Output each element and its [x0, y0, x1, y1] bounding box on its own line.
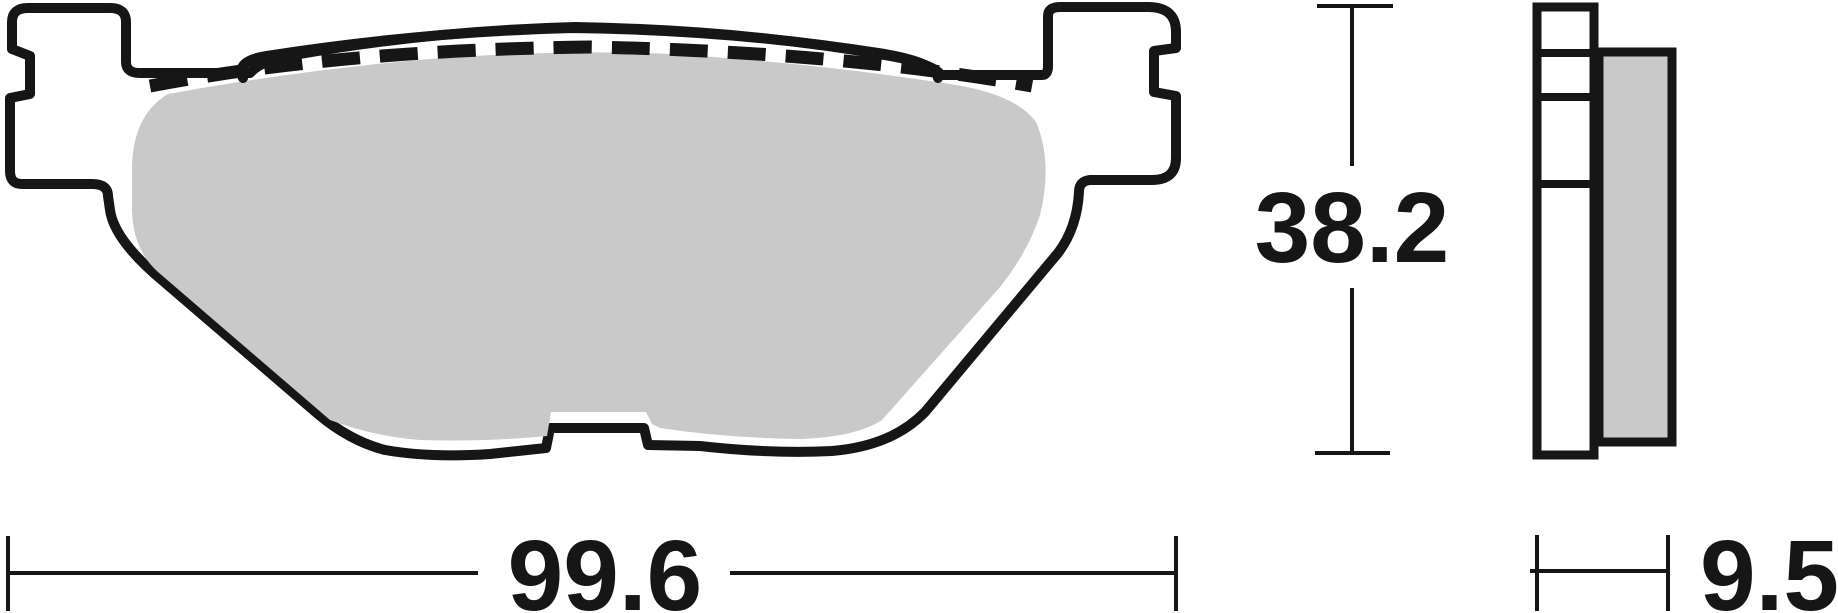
height-dimension-label: 38.2 [1255, 172, 1450, 284]
drawing-canvas: 38.2 99.6 9.5 [0, 0, 1838, 613]
side-friction-material [1599, 52, 1672, 442]
front-view [10, 7, 1176, 455]
front-friction-material [132, 52, 1046, 440]
side-view [1537, 7, 1672, 455]
side-backing-plate [1537, 7, 1594, 455]
thickness-dimension-label: 9.5 [1700, 520, 1838, 613]
thickness-dimension [1530, 535, 1668, 611]
width-dimension-label: 99.6 [508, 520, 703, 613]
brake-pad-technical-drawing: 38.2 99.6 9.5 [0, 0, 1838, 613]
